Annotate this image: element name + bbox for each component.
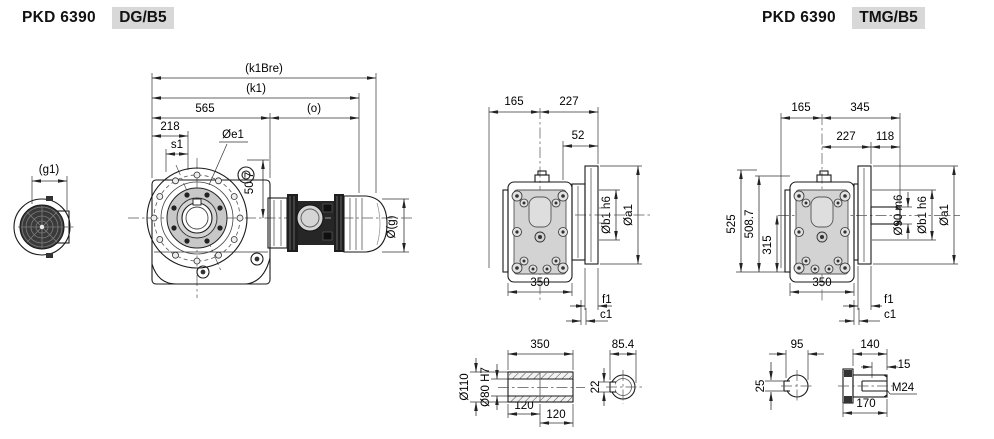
dim-g1: (g1) xyxy=(39,164,60,176)
fan-cowl xyxy=(344,196,387,252)
dim-og: Ø(g) xyxy=(386,215,398,238)
motor-fins-rear xyxy=(334,194,344,252)
flange-neck xyxy=(572,184,585,260)
bore-keyway xyxy=(193,199,201,205)
technical-drawing-page: PKD 6390 DG/B5 PKD 6390 TMG/B5 (g1) xyxy=(0,0,994,439)
b5-flange xyxy=(858,166,871,264)
hatch-top xyxy=(509,373,572,379)
dim-140: 140 xyxy=(860,339,879,351)
dim-345: 345 xyxy=(850,102,869,114)
dim-s1: s1 xyxy=(171,139,183,151)
dim-227: 227 xyxy=(559,96,578,108)
dg-side-view: (k1Bre) (k1) 565 (o) 218 s1 Øe1 50.7 Ø(g… xyxy=(128,63,412,298)
dim-218: 218 xyxy=(160,121,179,133)
dim-ob1: Øb1 h6 xyxy=(917,196,929,234)
guard-clip-top xyxy=(46,196,53,201)
dim-525: 525 xyxy=(726,214,738,233)
dim-15: 15 xyxy=(898,359,911,371)
dim-165: 165 xyxy=(791,102,810,114)
dim-k1: (k1) xyxy=(246,83,266,95)
solid-shaft-detail: 95 25 140 15 M24 170 xyxy=(755,339,917,417)
flange-neck xyxy=(854,184,858,260)
dim-o80: Ø80 H7 xyxy=(480,367,492,407)
breather-boss xyxy=(535,175,549,182)
dim-350: 350 xyxy=(530,339,549,351)
motor xyxy=(268,194,387,252)
dim-22: 22 xyxy=(590,381,602,394)
inspection-slot xyxy=(811,197,833,227)
dim-565: 565 xyxy=(195,103,214,115)
hollow-shaft-detail: 350 Ø110 Ø80 H7 120 120 85.4 22 xyxy=(459,339,642,427)
label-oe1: Øe1 xyxy=(222,129,244,141)
dim-315: 315 xyxy=(762,235,774,254)
dg-rear-view: 165 227 52 Øb1 h6 Øa1 350 f1 c1 xyxy=(489,96,650,325)
dim-c1: c1 xyxy=(884,309,896,321)
motor-fins-front xyxy=(287,194,298,252)
dim-95: 95 xyxy=(791,339,804,351)
fan-center xyxy=(40,225,44,229)
tmg-rear-view: 165 345 227 118 525 508.7 315 Ø90 m6 Øb1… xyxy=(726,102,960,325)
hollow-shaft-bore xyxy=(182,203,212,233)
collar-hatch-bottom xyxy=(844,396,852,403)
inspection-slot xyxy=(529,197,551,227)
dim-85-4: 85.4 xyxy=(612,339,635,351)
dim-118: 118 xyxy=(876,131,894,143)
label-m24: M24 xyxy=(892,382,915,394)
dim-f1: f1 xyxy=(884,294,894,306)
breather-boss xyxy=(817,175,831,182)
dim-25: 25 xyxy=(755,380,767,393)
dim-165: 165 xyxy=(504,96,523,108)
dim-227: 227 xyxy=(836,131,855,143)
dim-170: 170 xyxy=(856,398,875,410)
dim-o90: Ø90 m6 xyxy=(893,195,905,236)
dim-52: 52 xyxy=(572,130,585,142)
dim-120b: 120 xyxy=(546,409,565,421)
dim-k1bre: (k1Bre) xyxy=(245,63,283,75)
motor-adapter xyxy=(268,198,287,248)
hatch-bottom xyxy=(509,396,572,402)
housing-side-rib xyxy=(503,190,508,272)
housing-side-rib xyxy=(785,190,790,272)
dim-o110: Ø110 xyxy=(459,373,471,400)
drawing-canvas: (g1) (k1Bre) (k1) 565 (o) 2 xyxy=(0,0,994,439)
collar-hatch-top xyxy=(844,370,852,377)
dim-508-7: 508.7 xyxy=(744,210,756,239)
dim-o: (o) xyxy=(307,103,321,115)
dim-oa1: Øa1 xyxy=(939,204,951,226)
guard-clip-bottom xyxy=(46,253,53,258)
fan-guard-view: (g1) xyxy=(14,164,76,258)
dim-c1: c1 xyxy=(600,309,612,321)
dim-f1: f1 xyxy=(602,294,612,306)
